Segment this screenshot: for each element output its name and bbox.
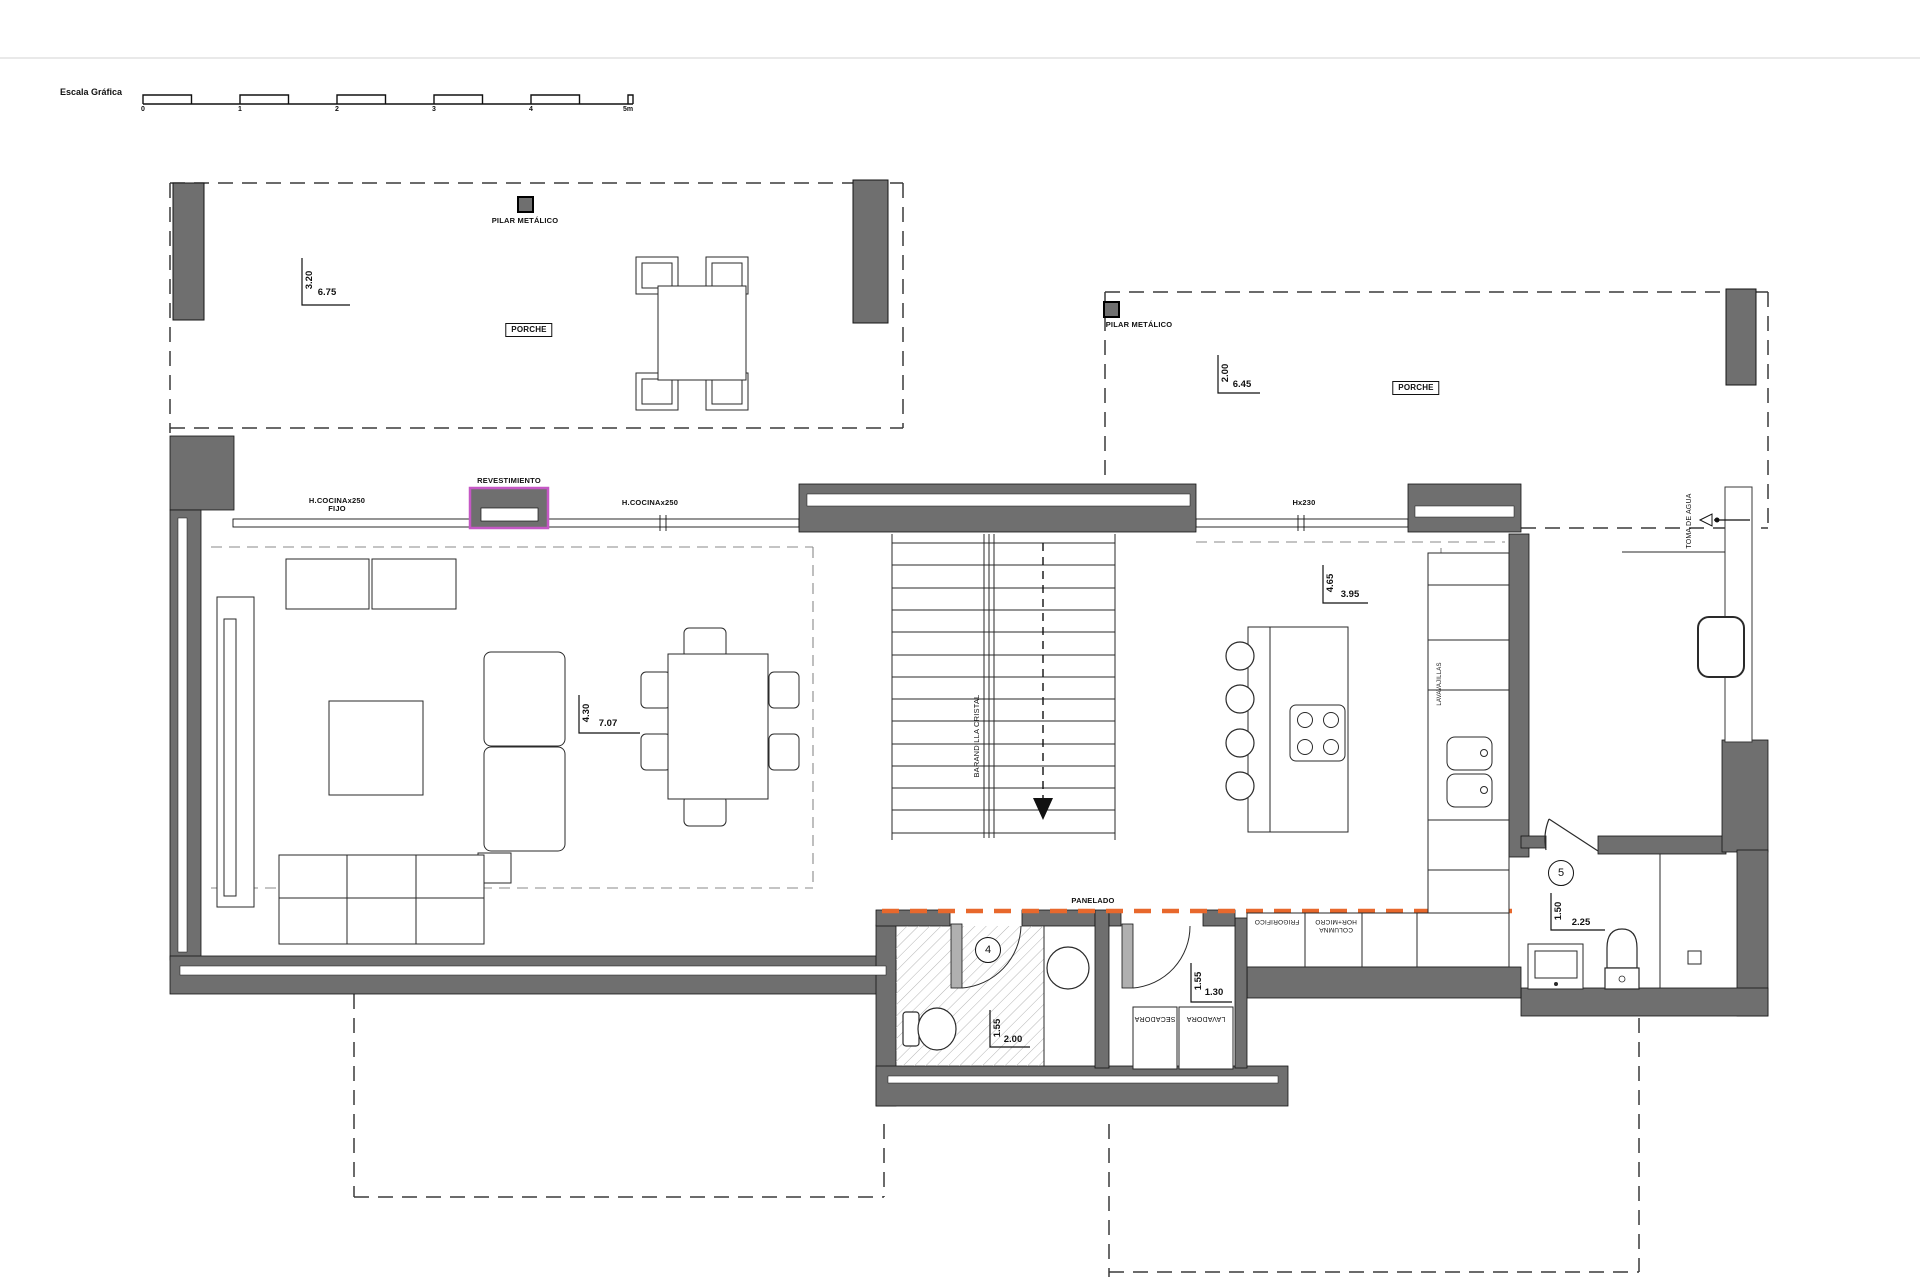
- room-number-4: 4: [975, 937, 1001, 963]
- laundry-dim-v: 1.55: [1195, 972, 1203, 991]
- bathroom4-basin: [1047, 947, 1089, 989]
- wc5-dim-v: 1.50: [1555, 902, 1563, 921]
- wc5-vanity: [1528, 944, 1583, 989]
- porch-pillars: [173, 180, 1756, 385]
- washer-label: LAVADORA: [1187, 1014, 1226, 1022]
- laundry-dim-h: 1.30: [1205, 989, 1224, 997]
- staircase: [892, 534, 1115, 840]
- porch-dining-set: [636, 257, 748, 410]
- window-band-kitchen: [1196, 515, 1408, 531]
- kitchen-dim-h: 3.95: [1341, 591, 1360, 599]
- window-label-left-line2: FIJO: [328, 504, 345, 513]
- floor-plan-canvas: [0, 0, 1920, 1280]
- floor-plan-page: Escala Gráfica 0 1 2 3 4 5m PILAR METÁLI…: [0, 0, 1920, 1280]
- porch-right-dim-h: 6.45: [1233, 381, 1252, 389]
- metal-pillar-squares: [518, 197, 1119, 317]
- coffee-table: [329, 701, 423, 795]
- pillar-label-left: PILAR METÁLICO: [492, 217, 559, 225]
- scale-tick-0: 0: [141, 106, 145, 113]
- column-oven-label: COLUMNA HOR+MICRO: [1315, 917, 1357, 933]
- room-label-porch-right: PORCHE: [1392, 381, 1439, 395]
- window-label-mid: H.COCINAx250: [622, 499, 678, 507]
- column-label-line2: HOR+MICRO: [1315, 918, 1357, 925]
- bathroom4-dim-h: 2.00: [1004, 1036, 1023, 1044]
- window-label-kitchen: Hx230: [1292, 499, 1315, 507]
- wc5-toilet: [1605, 929, 1639, 989]
- glass-railing: [984, 534, 994, 838]
- cladding-pillar: [470, 488, 548, 528]
- scale-tick-3: 3: [432, 106, 436, 113]
- porch-left-dim-v: 3.20: [306, 271, 314, 290]
- scale-bar: [143, 95, 633, 104]
- living-dim-v: 4.30: [583, 704, 591, 723]
- scale-tick-4: 4: [529, 106, 533, 113]
- bathroom4-toilet: [903, 1008, 956, 1050]
- railing-label: BARANDILLA CRISTAL: [973, 694, 981, 777]
- bathroom4-dim-v: 1.55: [994, 1019, 1002, 1038]
- porch-left-dim-h: 6.75: [318, 289, 337, 297]
- stair-direction-arrow: [1033, 543, 1053, 820]
- water-intake-label: TOMA DE AGUA: [1686, 493, 1694, 548]
- dining-set: [641, 628, 799, 826]
- paneling-label: PANELADO: [1071, 897, 1114, 905]
- porch-right-dim-v: 2.00: [1222, 364, 1230, 383]
- column-label-line1: COLUMNA: [1319, 926, 1353, 933]
- room-label-porch-left: PORCHE: [505, 323, 552, 337]
- scale-bar-title: Escala Gráfica: [60, 87, 122, 97]
- fridge-label: FRIGORIFICO: [1255, 917, 1300, 925]
- scale-tick-5: 5m: [623, 106, 633, 113]
- kitchen-counter: [1428, 553, 1509, 925]
- laundry-door: [1122, 924, 1190, 988]
- window-label-left: H.COCINAx250 FIJO: [309, 497, 365, 513]
- scale-tick-1: 1: [238, 106, 242, 113]
- scale-tick-2: 2: [335, 106, 339, 113]
- pillar-label-right: PILAR METÁLICO: [1106, 321, 1173, 329]
- wc5-dim-h: 2.25: [1572, 919, 1591, 927]
- room-number-5: 5: [1548, 860, 1574, 886]
- wc5-floor-drain: [1688, 951, 1701, 964]
- wc5-door: [1545, 819, 1598, 851]
- dishwasher-label: LAVAVAJILLAS: [1436, 662, 1444, 705]
- cladding-label: REVESTIMIENTO: [477, 477, 541, 485]
- kitchen-island: [1248, 627, 1348, 832]
- dryer-label: SECADORA: [1135, 1014, 1176, 1022]
- kitchen-dim-v: 4.65: [1327, 574, 1335, 593]
- living-dim-h: 7.07: [599, 720, 618, 728]
